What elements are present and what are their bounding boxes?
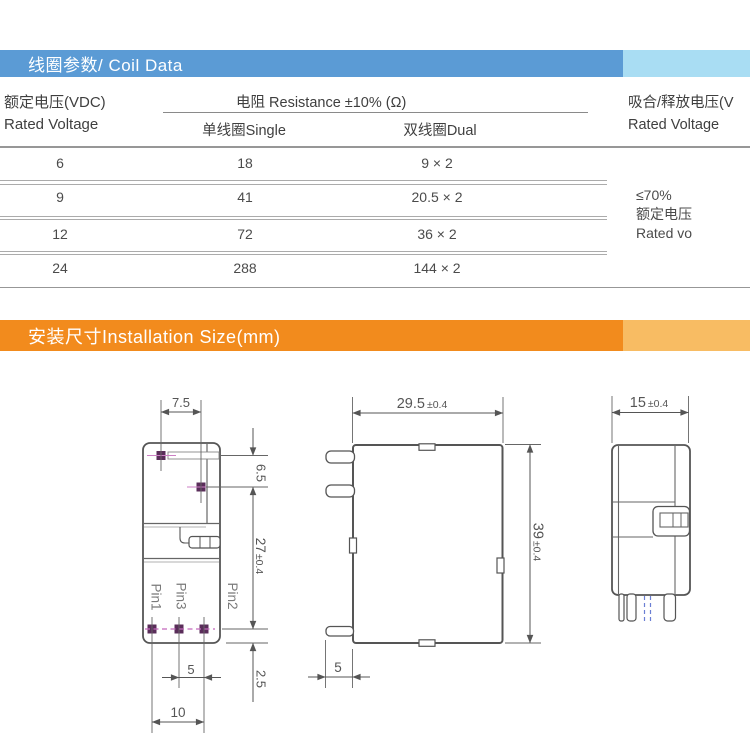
- dim-body-depth-value: 15: [630, 395, 646, 411]
- installation-size-title: 安装尺寸Installation Size(mm): [0, 323, 281, 349]
- dual-coil-header: 双线圈Dual: [403, 119, 476, 140]
- pin: [664, 594, 676, 621]
- coil-data-title: 线圈参数/ Coil Data: [0, 51, 183, 76]
- table-cell-single: 72: [237, 226, 253, 242]
- table-cell-dual: 36 × 2: [417, 226, 456, 242]
- dim-body-depth-tol: ±0.4: [648, 398, 669, 410]
- latch-tab: [189, 537, 220, 549]
- table-row-divider: [0, 180, 607, 181]
- table-cell-voltage: 24: [52, 260, 68, 276]
- voltage-column-header: 额定电压(VDC) Rated Voltage: [4, 92, 106, 136]
- dim-body-height-label: 39±0.4: [530, 523, 546, 562]
- pin1-label: Pin1: [149, 583, 164, 610]
- dim-pin-span-tol: ±0.4: [253, 554, 265, 575]
- voltage-header-en: Rated Voltage: [4, 114, 106, 136]
- contact-pin: [326, 627, 354, 637]
- coil-data-header-tail: [623, 50, 750, 77]
- installation-drawings: 7.5 6.5 27±0.4 2.5 Pin1 Pin3 Pin2: [0, 380, 750, 750]
- dim-body-height: 39±0.4: [505, 445, 546, 644]
- dim-body-depth-label: 15±0.4: [630, 395, 669, 411]
- coil-data-header-main: 线圈参数/ Coil Data: [0, 50, 623, 77]
- pickup-note-line3: Rated vo: [636, 224, 692, 243]
- dim-body-width-value: 29.5: [397, 396, 425, 412]
- installation-size-header-bar: 安装尺寸Installation Size(mm): [0, 320, 750, 351]
- side-view: 15±0.4: [612, 395, 690, 621]
- table-cell-single: 18: [237, 155, 253, 171]
- voltage-header-zh: 额定电压(VDC): [4, 92, 106, 114]
- table-cell-voltage: 9: [56, 189, 64, 205]
- pickup-header-en: Rated Voltage: [628, 114, 734, 136]
- table-row-divider: [0, 251, 607, 252]
- top-notch: [419, 444, 435, 451]
- table-row-divider: [0, 216, 607, 217]
- dim-pin-row-width-label: 10: [170, 705, 185, 720]
- dim-coil-pin-offset-label: 6.5: [254, 464, 269, 482]
- pin: [619, 594, 624, 621]
- dim-coil-pin-offset: 6.5: [253, 428, 269, 482]
- datasheet-page: 线圈参数/ Coil Data 额定电压(VDC) Rated Voltage …: [0, 0, 750, 750]
- pickup-voltage-note: ≤70% 额定电压 Rated vo: [636, 186, 692, 243]
- table-cell-voltage: 12: [52, 226, 68, 242]
- pin: [627, 594, 636, 621]
- dim-body-depth: 15±0.4: [612, 395, 689, 443]
- table-bottom-divider: [0, 287, 750, 289]
- dim-top-pitch-label: 7.5: [172, 395, 190, 410]
- resistance-column-header: 电阻 Resistance ±10% (Ω): [236, 91, 406, 112]
- dim-bottom-offset: 2.5: [253, 643, 269, 702]
- dim-pin-span-label: 27±0.4: [253, 538, 268, 575]
- right-notch: [497, 558, 504, 573]
- dim-top-pitch: 7.5: [161, 395, 201, 412]
- table-cell-single: 288: [233, 260, 256, 276]
- table-cell-dual: 9 × 2: [421, 155, 453, 171]
- dim-pin-span: 27±0.4: [253, 487, 268, 629]
- dim-pin-pitch: 5: [162, 662, 221, 678]
- table-row-divider: [0, 184, 607, 185]
- front-view-outline: [353, 445, 503, 643]
- bottom-view: 7.5 6.5 27±0.4 2.5 Pin1 Pin3 Pin2: [143, 395, 269, 733]
- dim-pin-span-value: 27: [253, 538, 268, 553]
- table-row-divider: [0, 254, 607, 255]
- dim-pin-pitch-label: 5: [187, 662, 194, 677]
- dim-body-height-value: 39: [530, 523, 546, 539]
- bottom-notch: [419, 640, 435, 647]
- pickup-note-line2: 额定电压: [636, 205, 692, 224]
- dim-body-width: 29.5±0.4: [353, 396, 504, 443]
- coil-pin: [326, 451, 355, 463]
- table-cell-dual: 20.5 × 2: [412, 189, 463, 205]
- dim-pin-row-width: 10: [152, 705, 204, 722]
- dim-bottom-offset-label: 2.5: [254, 670, 269, 688]
- resistance-header-underline: [163, 112, 588, 113]
- table-header-divider: [0, 146, 750, 148]
- coil-data-header-bar: 线圈参数/ Coil Data: [0, 50, 750, 77]
- table-cell-single: 41: [237, 189, 253, 205]
- installation-header-tail: [623, 320, 750, 351]
- table-cell-dual: 144 × 2: [413, 260, 460, 276]
- dim-body-height-tol: ±0.4: [531, 541, 543, 562]
- dim-body-width-label: 29.5±0.4: [397, 396, 448, 412]
- pin3-label: Pin3: [174, 582, 189, 609]
- table-row-divider: [0, 219, 607, 220]
- latch-tab-window: [660, 513, 688, 527]
- installation-header-main: 安装尺寸Installation Size(mm): [0, 320, 623, 351]
- front-view: 29.5±0.4 39±0.4 5: [308, 396, 546, 688]
- pickup-note-line1: ≤70%: [636, 186, 692, 205]
- single-coil-header: 单线圈Single: [202, 119, 286, 140]
- dim-front-pin-length: 5: [308, 640, 370, 688]
- coil-pin: [326, 485, 355, 497]
- table-cell-voltage: 6: [56, 155, 64, 171]
- pin2-label: Pin2: [225, 582, 240, 609]
- left-notch: [350, 538, 357, 553]
- dim-body-width-tol: ±0.4: [427, 399, 448, 411]
- dim-front-pin-length-label: 5: [334, 660, 342, 675]
- pickup-header-zh: 吸合/释放电压(V: [628, 92, 734, 114]
- pickup-column-header: 吸合/释放电压(V Rated Voltage: [628, 92, 734, 136]
